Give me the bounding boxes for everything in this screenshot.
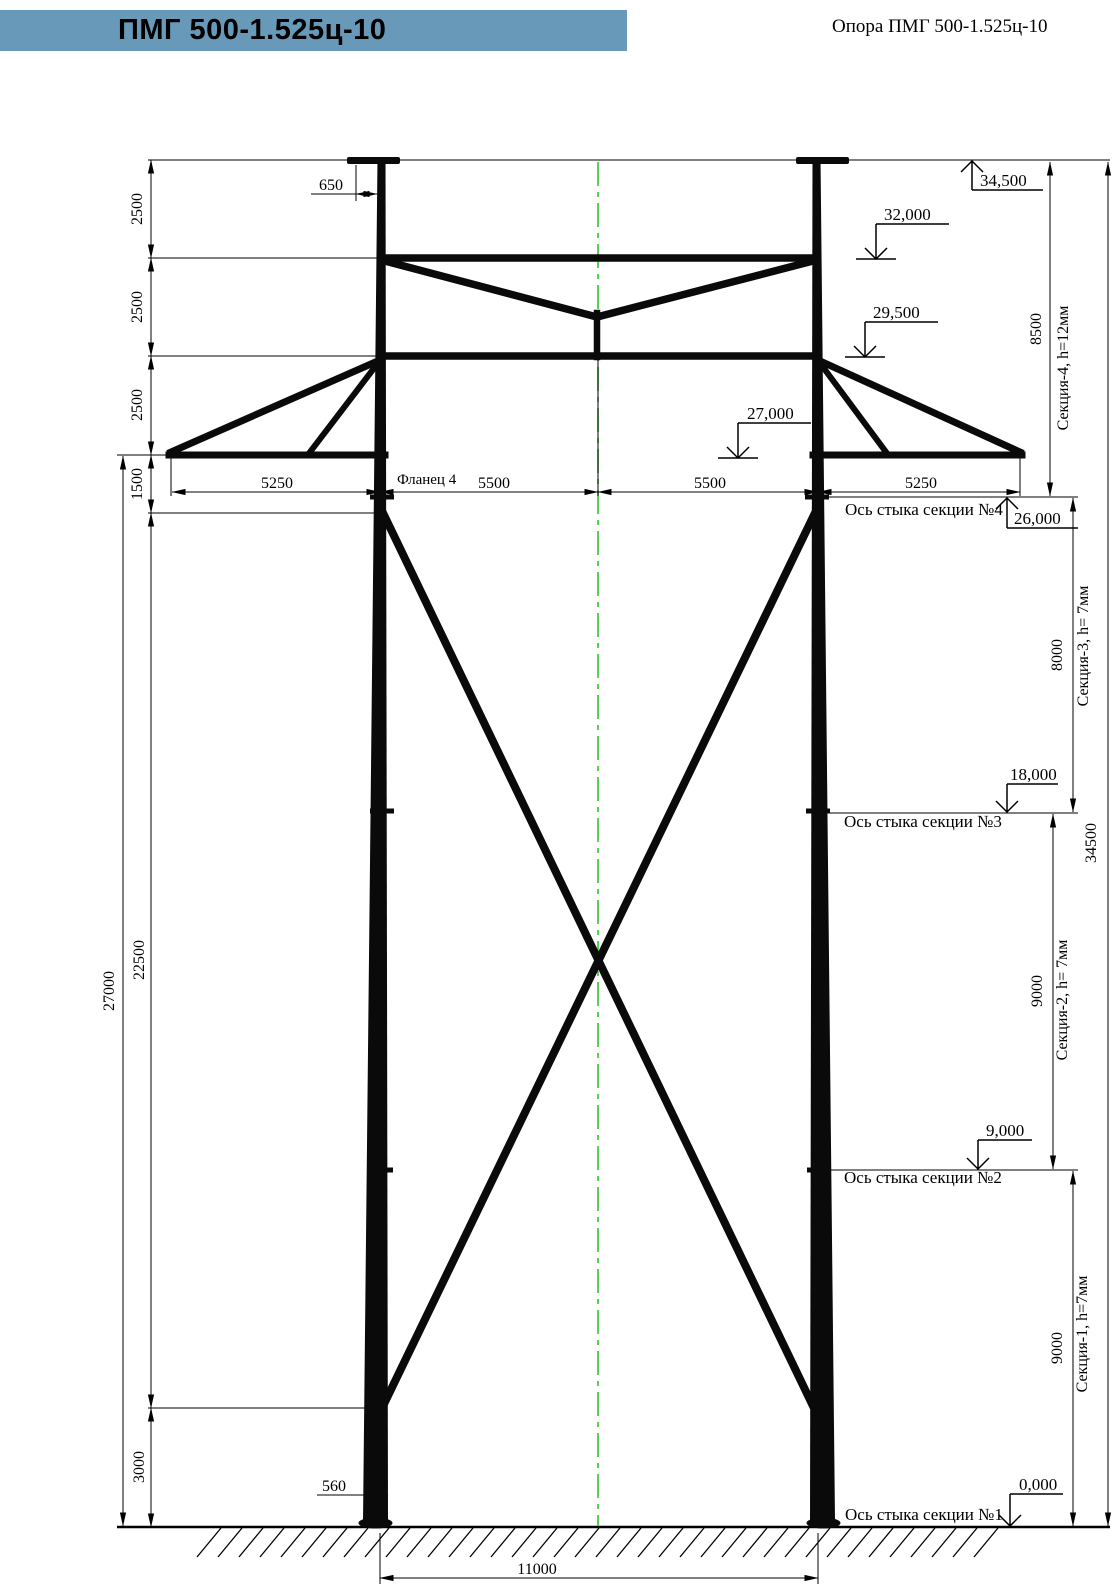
label-section-2: Секция-2, h= 7мм	[1054, 940, 1071, 1061]
dim-3000: 3000	[131, 1451, 148, 1483]
dimension-lines	[123, 160, 1108, 1578]
label-section-3: Секция-3, h= 7мм	[1075, 586, 1092, 707]
label-joint-axis-4: Ось стыка секции №4	[845, 500, 1003, 519]
cross-members	[169, 258, 1022, 1404]
elevation-32000: 32,000	[884, 205, 931, 224]
dim-8500: 8500	[1028, 313, 1045, 345]
drawing-sheet: ПМГ 500-1.525ц-10 Опора ПМГ 500-1.525ц-1…	[0, 0, 1120, 1590]
label-joint-axis-2: Ось стыка секции №2	[844, 1168, 1002, 1187]
dim-1500: 1500	[129, 468, 146, 500]
dim-5500-right: 5500	[694, 475, 726, 492]
drawing-labels: 2500 2500 2500 1500 22500 3000 27000 650…	[101, 171, 1100, 1578]
label-section-4: Секция-4, h=12мм	[1055, 306, 1072, 431]
elevation-26000: 26,000	[1014, 509, 1061, 528]
elevation-18000: 18,000	[1010, 765, 1057, 784]
dim-9000-sec2: 9000	[1029, 975, 1046, 1007]
dim-34500: 34500	[1083, 823, 1100, 863]
dim-2500-a: 2500	[129, 193, 146, 225]
elevation-34500: 34,500	[980, 171, 1027, 190]
right-base-flange	[807, 1518, 841, 1529]
label-joint-axis-3: Ось стыка секции №3	[844, 812, 1002, 831]
elevation-mark-18000	[996, 784, 1058, 812]
elevation-mark-9000	[967, 1140, 1032, 1169]
left-pole-cap	[347, 157, 400, 164]
dim-5250-right: 5250	[905, 475, 937, 492]
dim-5500-left: 5500	[478, 475, 510, 492]
left-base-flange	[359, 1518, 393, 1529]
elevation-27000: 27,000	[747, 404, 794, 423]
dim-8000: 8000	[1049, 639, 1066, 671]
dim-22500: 22500	[131, 940, 148, 980]
dim-11000: 11000	[517, 1561, 556, 1578]
elevation-mark-29500	[845, 322, 938, 357]
elevation-mark-32000	[856, 224, 949, 259]
label-section-1: Секция-1, h=7мм	[1074, 1276, 1091, 1393]
dim-560: 560	[322, 1478, 346, 1495]
elevation-9000: 9,000	[986, 1121, 1024, 1140]
elevation-0000: 0,000	[1019, 1475, 1057, 1494]
dim-5250-left: 5250	[261, 475, 293, 492]
dim-2500-b: 2500	[129, 291, 146, 323]
tower-structure	[169, 157, 1022, 1529]
label-flange-4: Фланец 4	[397, 472, 457, 488]
dim-2500-c: 2500	[129, 389, 146, 421]
elevation-mark-0000	[999, 1494, 1063, 1526]
dim-9000-sec1: 9000	[1049, 1332, 1066, 1364]
label-joint-axis-1: Ось стыка секции №1	[845, 1505, 1003, 1524]
ground-hatching	[197, 1528, 998, 1557]
elevation-29500: 29,500	[873, 303, 920, 322]
dim-650: 650	[319, 177, 343, 194]
elevation-mark-27000	[718, 423, 811, 458]
right-pole-cap	[796, 157, 849, 164]
tower-drawing: 2500 2500 2500 1500 22500 3000 27000 650…	[0, 0, 1120, 1590]
extension-lines	[117, 160, 1110, 1584]
section-joint-ticks	[369, 495, 831, 1173]
dim-27000: 27000	[101, 971, 118, 1011]
